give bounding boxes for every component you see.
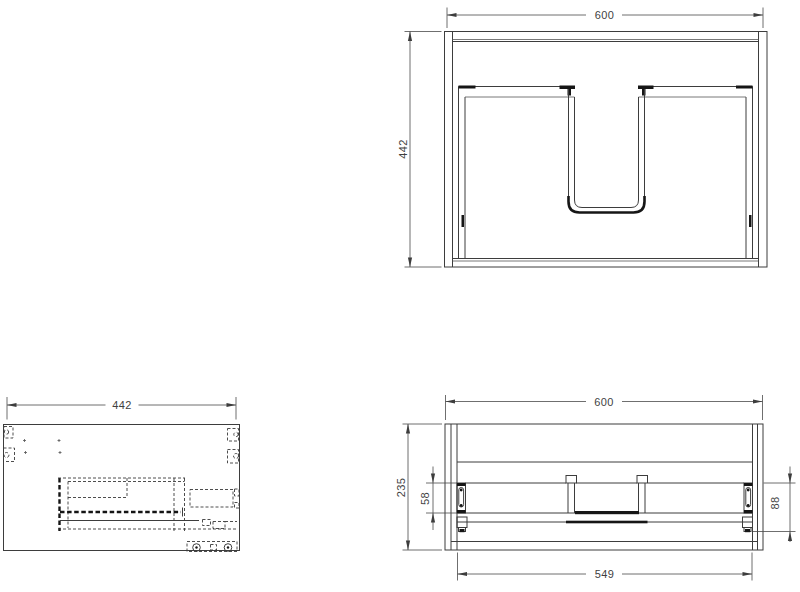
top-right-hinge-bracket bbox=[743, 483, 753, 532]
top-sink-recess-channel bbox=[566, 476, 648, 524]
front-height-dimension: 442 bbox=[397, 32, 442, 268]
top-slide-inset-dimension-label: 88 bbox=[769, 496, 781, 509]
side-depth-dimension-label: 442 bbox=[112, 399, 132, 411]
front-height-dimension-label: 442 bbox=[397, 139, 409, 159]
side-drawer-slide bbox=[60, 508, 237, 529]
side-view: 442 bbox=[4, 397, 240, 552]
top-left-hinge-bracket bbox=[457, 483, 467, 532]
top-hinge-inset-dimension-label: 58 bbox=[419, 492, 431, 505]
top-view: 600 235 58 88 bbox=[395, 395, 796, 581]
front-cabinet-outline bbox=[445, 32, 768, 268]
top-inner-width-dimension-label: 549 bbox=[595, 568, 615, 580]
front-width-dimension: 600 bbox=[447, 8, 763, 29]
top-cabinet-outline bbox=[445, 424, 763, 550]
side-cabinet-outline bbox=[4, 425, 240, 551]
side-rear-bracket bbox=[190, 489, 239, 508]
front-back-panel bbox=[459, 86, 753, 259]
top-width-dimension-label: 600 bbox=[594, 396, 614, 408]
top-width-dimension: 600 bbox=[446, 395, 763, 420]
cad-drawing-page: 600 442 bbox=[0, 0, 800, 592]
side-screw-marks bbox=[23, 439, 62, 454]
front-view: 600 442 bbox=[397, 8, 767, 268]
sink-plumbing-cutout bbox=[560, 86, 654, 213]
top-inner-width-dimension: 549 bbox=[458, 553, 753, 581]
side-depth-dimension: 442 bbox=[7, 397, 236, 420]
front-width-dimension-label: 600 bbox=[595, 9, 615, 21]
top-depth-dimension: 235 bbox=[395, 424, 442, 550]
top-slide-inset-dimension: 88 bbox=[753, 467, 796, 543]
vanity-cabinet-technical-drawing: 600 442 bbox=[0, 0, 800, 592]
top-depth-dimension-label: 235 bbox=[395, 478, 407, 498]
side-hinge-plates bbox=[4, 427, 239, 464]
